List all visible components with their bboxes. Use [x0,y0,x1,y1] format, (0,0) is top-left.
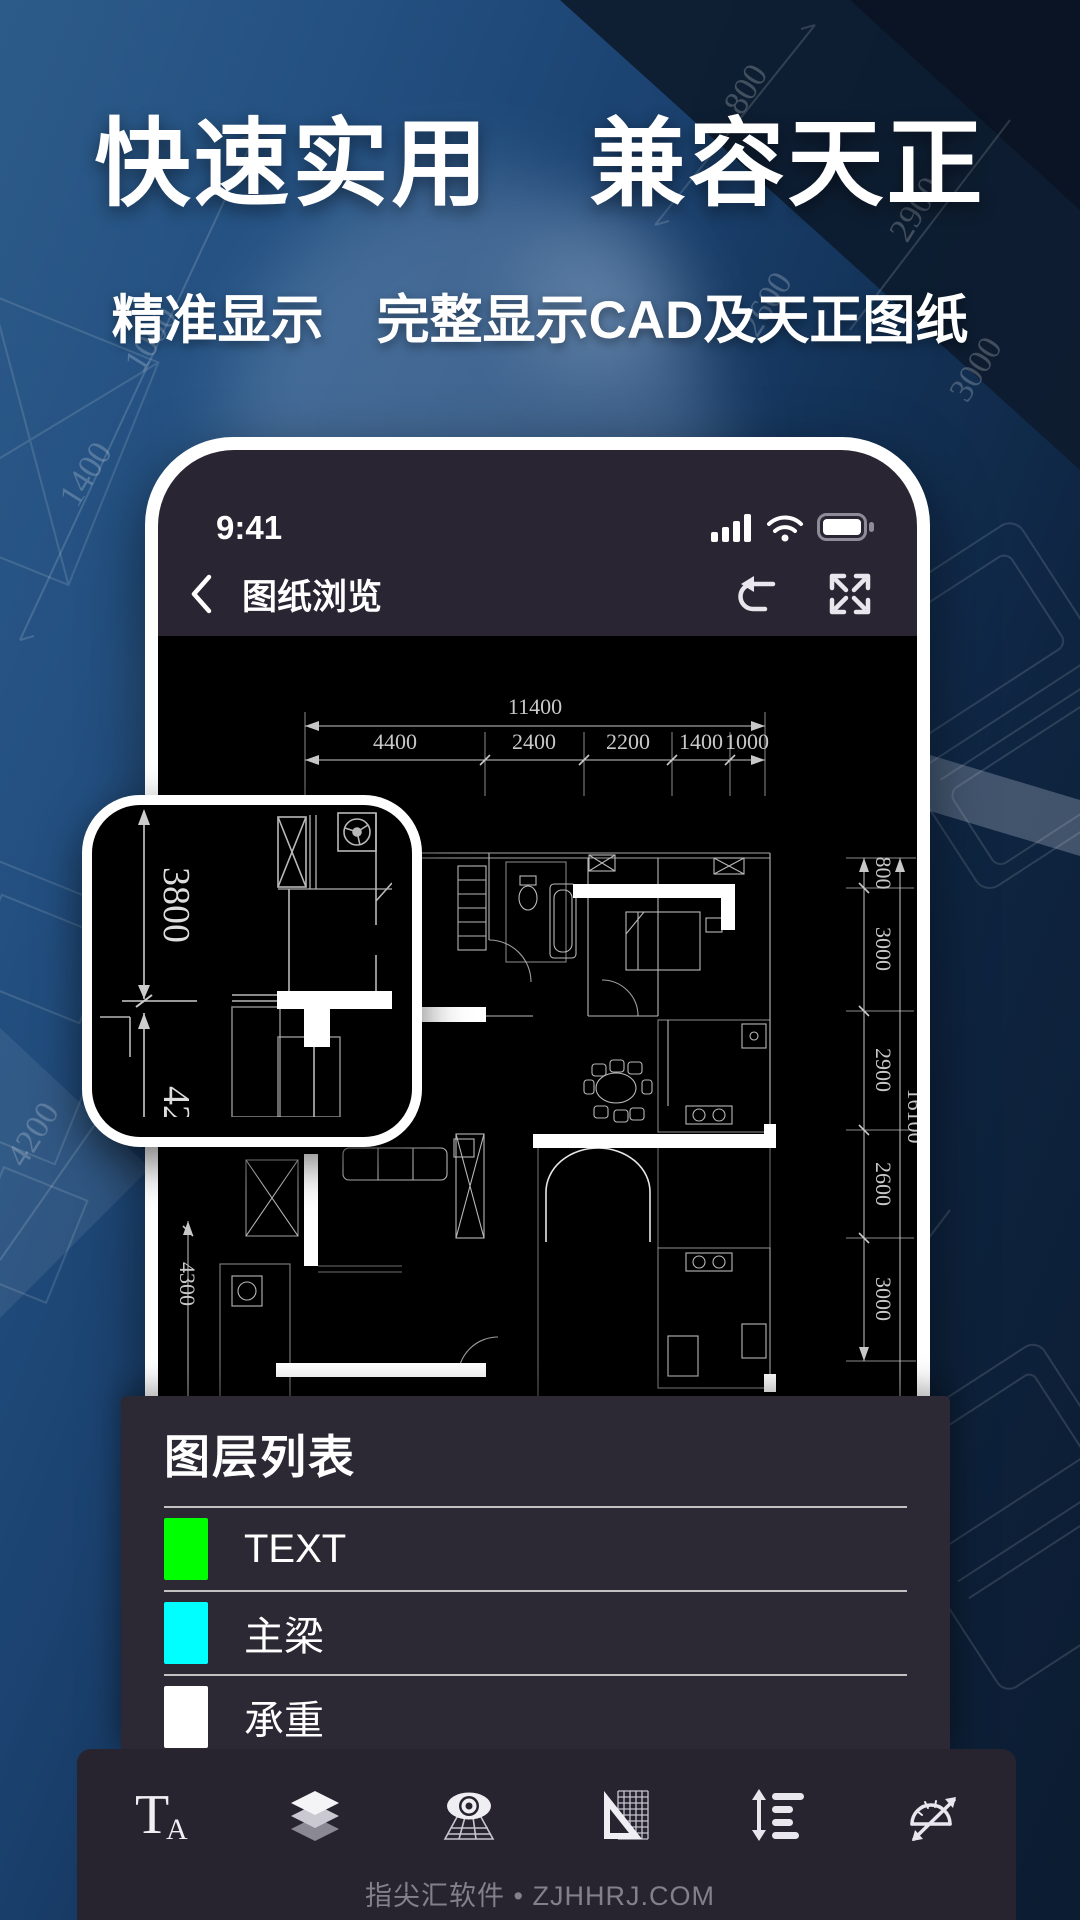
layer-color-swatch-cyan [164,1602,208,1664]
layer-name: 主梁 [244,1604,324,1662]
layer-name: TEXT [244,1527,346,1572]
dim-right-2900: 2900 [871,1048,896,1092]
dim-top-1400: 1400 [679,729,723,754]
svg-text:T: T [135,1787,169,1843]
layer-color-swatch-white [164,1686,208,1748]
set-square-grid-icon [596,1787,652,1843]
layer-row-bearing[interactable]: 承重 [164,1674,907,1749]
undo-button[interactable] [735,574,781,614]
view-eye-grid-icon [441,1787,497,1843]
status-icons [711,512,875,544]
view-eye-button[interactable] [441,1787,497,1843]
layer-panel: 图层列表 TEXT 主梁 承重 [121,1396,950,1749]
layers-button[interactable] [287,1787,343,1843]
magnifier-dim-3800: 3800 [155,867,197,943]
dim-top-1000: 1000 [725,729,769,754]
hero-title: 快速实用 兼容天正 [0,86,1080,225]
dim-top-4400: 4400 [373,729,417,754]
hero-subtitle: 精准显示 完整显示CAD及天正图纸 [0,278,1080,354]
battery-icon [817,512,875,542]
signal-icon [711,512,753,542]
dim-right-2600: 2600 [871,1162,896,1206]
promo-screenshot: 1400 1000 800 2900 2600 3000 4200 4400 快… [0,0,1080,1920]
nav-title: 图纸浏览 [242,569,382,620]
layer-name: 承重 [244,1688,324,1746]
status-bar: 9:41 [158,450,917,552]
status-time: 9:41 [216,511,282,544]
fullscreen-button[interactable] [827,571,873,617]
magnifier-callout: 3800 42 [82,795,422,1147]
dim-right-3000b: 3000 [871,1277,896,1321]
nav-bar: 图纸浏览 [158,552,917,636]
text-style-button[interactable]: T A [133,1787,189,1843]
chevron-left-icon [188,572,214,616]
text-style-icon: T A [133,1787,189,1843]
line-spacing-icon [750,1787,806,1843]
layer-row-text[interactable]: TEXT [164,1506,907,1590]
dim-top-2200: 2200 [606,729,650,754]
dim-right-3000a: 3000 [871,927,896,971]
back-button[interactable] [188,572,214,616]
dim-top-total: 11400 [508,694,562,719]
set-square-button[interactable] [596,1787,652,1843]
footer-watermark: 指尖汇软件 • ZJHHRJ.COM [0,1874,1080,1913]
protractor-icon [904,1787,960,1843]
magnifier-dim-partial: 42 [155,1086,197,1117]
fullscreen-icon [827,571,873,617]
wifi-icon [765,512,805,542]
dim-right-800: 800 [871,857,896,890]
svg-text:A: A [166,1813,188,1843]
layers-icon [287,1787,343,1845]
dim-top-2400: 2400 [512,729,556,754]
layer-row-beam[interactable]: 主梁 [164,1590,907,1674]
line-spacing-button[interactable] [750,1787,806,1843]
undo-icon [735,574,781,614]
dim-right-total: 16100 [903,1089,917,1144]
layer-panel-title: 图层列表 [164,1396,907,1506]
protractor-button[interactable] [904,1787,960,1843]
magnifier-detail-svg: 3800 42 [92,805,392,1117]
layer-color-swatch-green [164,1518,208,1580]
